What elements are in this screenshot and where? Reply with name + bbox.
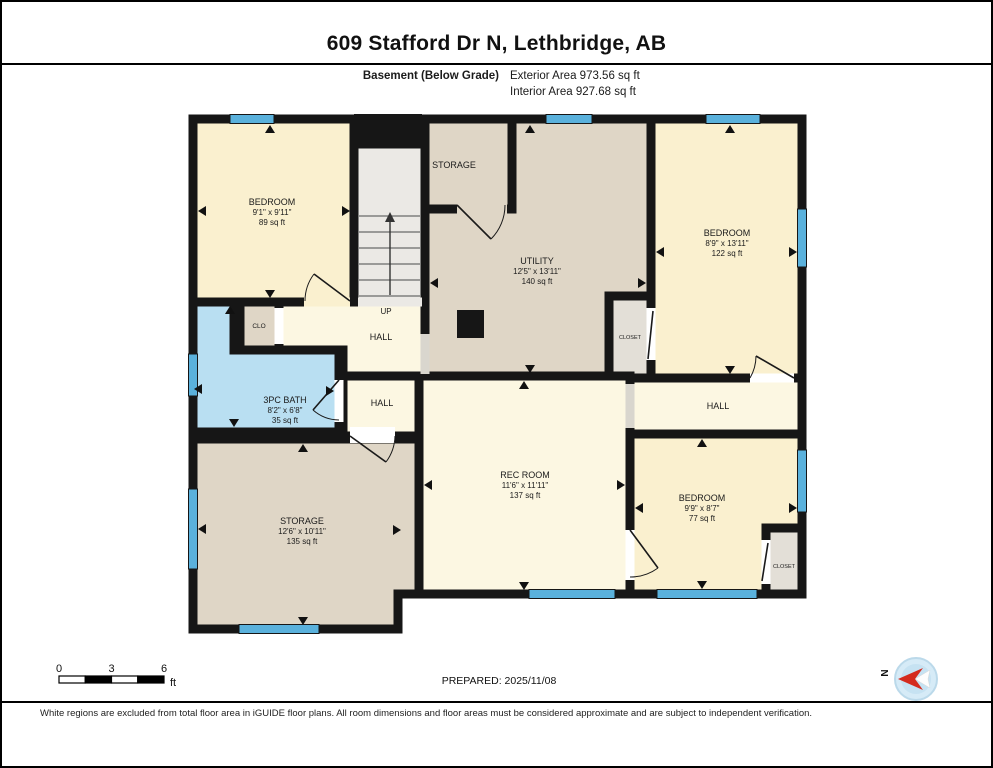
scale-tick-6: 6 bbox=[161, 663, 167, 675]
scale-tick-0: 0 bbox=[56, 663, 62, 675]
label-clo: CLO bbox=[252, 323, 265, 330]
dims-rec-room: 11'6" x 11'11" bbox=[502, 481, 549, 490]
furnace-block bbox=[457, 310, 484, 338]
label-bedroom-tr: BEDROOM bbox=[704, 228, 751, 238]
area-rec-room: 137 sq ft bbox=[510, 491, 541, 500]
label-storage-top: STORAGE bbox=[432, 160, 476, 170]
window-bedroom-tr-right bbox=[798, 209, 807, 267]
label-up: UP bbox=[380, 307, 391, 316]
area-utility: 140 sq ft bbox=[522, 277, 553, 286]
label-utility: UTILITY bbox=[520, 256, 554, 266]
disclaimer-text: White regions are excluded from total fl… bbox=[40, 708, 812, 719]
label-bath: 3PC BATH bbox=[263, 395, 306, 405]
label-closet-mid: CLOSET bbox=[619, 335, 642, 341]
floorplan-page: 609 Stafford Dr N, Lethbridge, AB Baseme… bbox=[0, 0, 993, 768]
footer-divider bbox=[2, 701, 991, 703]
label-storage-lower: STORAGE bbox=[280, 516, 324, 526]
dims-storage-lower: 12'6" x 10'11" bbox=[278, 527, 326, 536]
window-storage-bottom bbox=[239, 625, 319, 634]
window-storage-left bbox=[189, 489, 198, 569]
window-utility bbox=[546, 115, 592, 124]
area-bedroom-tl: 89 sq ft bbox=[259, 218, 286, 227]
rooms-and-walls bbox=[193, 114, 802, 629]
prepared-date: PREPARED: 2025/11/08 bbox=[442, 675, 557, 687]
compass-icon: N bbox=[880, 658, 937, 700]
dims-bedroom-tl: 9'1" x 9'11" bbox=[253, 208, 292, 217]
label-hall-right: HALL bbox=[707, 401, 730, 411]
window-bedroom-br-right bbox=[798, 450, 807, 512]
window-bedroom-tl bbox=[230, 115, 274, 124]
chimney-block bbox=[354, 114, 422, 148]
window-rec-room bbox=[529, 590, 615, 599]
dims-bedroom-br: 9'9" x 8'7" bbox=[685, 504, 720, 513]
label-bedroom-br: BEDROOM bbox=[679, 493, 726, 503]
label-hall-lower: HALL bbox=[371, 398, 394, 408]
scale-bar: 0 3 6 ft bbox=[56, 663, 176, 689]
window-bedroom-tr-top bbox=[706, 115, 760, 124]
area-bedroom-br: 77 sq ft bbox=[689, 514, 716, 523]
dims-bath: 8'2" x 6'8" bbox=[268, 406, 303, 415]
compass-north-label: N bbox=[880, 669, 891, 676]
label-closet-br: CLOSET bbox=[773, 564, 796, 570]
label-hall-center: HALL bbox=[370, 332, 393, 342]
label-bedroom-tl: BEDROOM bbox=[249, 197, 296, 207]
area-bath: 35 sq ft bbox=[272, 416, 299, 425]
scale-unit: ft bbox=[170, 677, 176, 689]
scale-tick-3: 3 bbox=[108, 663, 114, 675]
dims-utility: 12'5" x 13'11" bbox=[513, 267, 561, 276]
area-storage-lower: 135 sq ft bbox=[287, 537, 318, 546]
label-rec-room: REC ROOM bbox=[500, 470, 550, 480]
room-closet-bottom-right bbox=[766, 528, 802, 594]
dims-bedroom-tr: 8'9" x 13'11" bbox=[705, 239, 748, 248]
floorplan-svg: BEDROOM 9'1" x 9'11" 89 sq ft STORAGE UT… bbox=[2, 2, 993, 768]
area-bedroom-tr: 122 sq ft bbox=[712, 249, 743, 258]
window-bedroom-br-bottom bbox=[657, 590, 757, 599]
